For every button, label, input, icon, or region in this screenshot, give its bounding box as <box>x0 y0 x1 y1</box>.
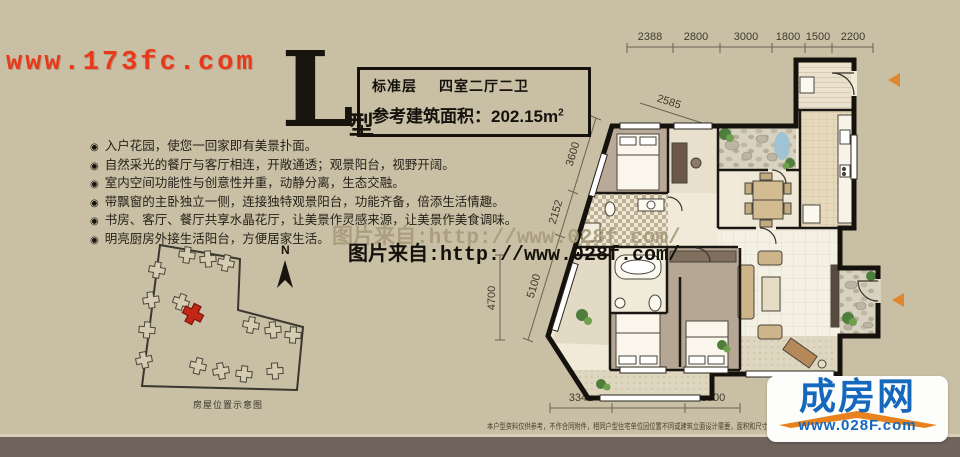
svg-text:2800: 2800 <box>684 31 708 43</box>
feature-text: 自然采光的餐厅与客厅相连，开敞通透；观景阳台，视野开阔。 <box>105 158 455 172</box>
svg-text:3000: 3000 <box>734 31 758 43</box>
site-location-map: N <box>125 238 340 410</box>
svg-text:4700: 4700 <box>486 286 498 310</box>
feature-text: 明亮厨房外接生活阳台，方便居家生活。 <box>105 232 330 246</box>
agency-watermark: www.173fc.com <box>6 48 256 78</box>
unit-info-row2: 参考建筑面积：202.15m2 <box>372 102 578 127</box>
bedroom-balcony-floor <box>570 370 712 398</box>
svg-text:5100: 5100 <box>525 273 544 300</box>
logo-url: www.028F.com <box>767 417 948 434</box>
feature-text: 室内空间功能性与创意性并重，动静分离，生态交融。 <box>105 176 405 190</box>
area-unit: m <box>543 107 558 126</box>
entry-arrow-icon <box>892 293 904 307</box>
bullet-icon: ◉ <box>90 198 99 209</box>
floorplan-advert: www.173fc.com 图片来自:http://www.028f.com/ … <box>0 0 960 457</box>
area-label: 参考建筑面积： <box>372 107 491 126</box>
north-arrow-icon: N <box>277 243 293 288</box>
bullet-icon: ◉ <box>90 161 99 172</box>
bullet-icon: ◉ <box>90 216 99 227</box>
floor-label: 标准层 <box>372 78 417 94</box>
svg-text:3600: 3600 <box>564 141 583 168</box>
unit-info-box: 标准层四室二厅二卫 参考建筑面积：202.15m2 <box>357 67 591 137</box>
bullet-icon: ◉ <box>90 235 99 246</box>
bullet-icon: ◉ <box>90 179 99 190</box>
dimension-top: 2388 2800 3000 1800 1500 2200 <box>627 31 873 53</box>
feature-item: ◉室内空间功能性与创意性并重，动静分离，生态交融。 <box>90 175 490 194</box>
feature-text: 入户花园，使您一回家即有美景扑面。 <box>105 139 318 153</box>
logo-card: 成房网 www.028F.com <box>767 376 948 442</box>
unit-info-row1: 标准层四室二厅二卫 <box>372 76 578 96</box>
entry-arrow-icon <box>888 73 900 87</box>
site-map-caption: 房屋位置示意图 <box>178 398 278 411</box>
building-footprints <box>135 246 302 383</box>
svg-text:1800: 1800 <box>776 31 800 43</box>
logo-name: 成房网 <box>767 377 948 417</box>
svg-text:2200: 2200 <box>841 31 865 43</box>
credit-watermark-dark: 图片来自:http://www.028f.com/ <box>348 237 680 267</box>
bullet-icon: ◉ <box>90 142 99 153</box>
area-value: 202.15 <box>491 107 543 126</box>
layout-label: 四室二厅二卫 <box>439 78 529 94</box>
svg-text:1500: 1500 <box>806 31 830 43</box>
feature-text: 带飘窗的主卧独立一侧，连接独特观景阳台，功能齐备，倍添生活情趣。 <box>105 195 505 209</box>
feature-item: ◉带飘窗的主卧独立一侧，连接独特观景阳台，功能齐备，倍添生活情趣。 <box>90 194 490 213</box>
area-unit-sup: 2 <box>558 107 564 118</box>
feature-item: ◉自然采光的餐厅与客厅相连，开敞通透；观景阳台，视野开阔。 <box>90 157 490 176</box>
feature-item: ◉入户花园，使您一回家即有美景扑面。 <box>90 138 490 157</box>
svg-text:2388: 2388 <box>638 31 662 43</box>
disclaimer-text: 本户型资料仅供参考，不作合同附件，相同户型住宅单位因位置不同或建筑立面设计需要，… <box>487 421 799 432</box>
unit-type-letter: L <box>281 38 354 142</box>
